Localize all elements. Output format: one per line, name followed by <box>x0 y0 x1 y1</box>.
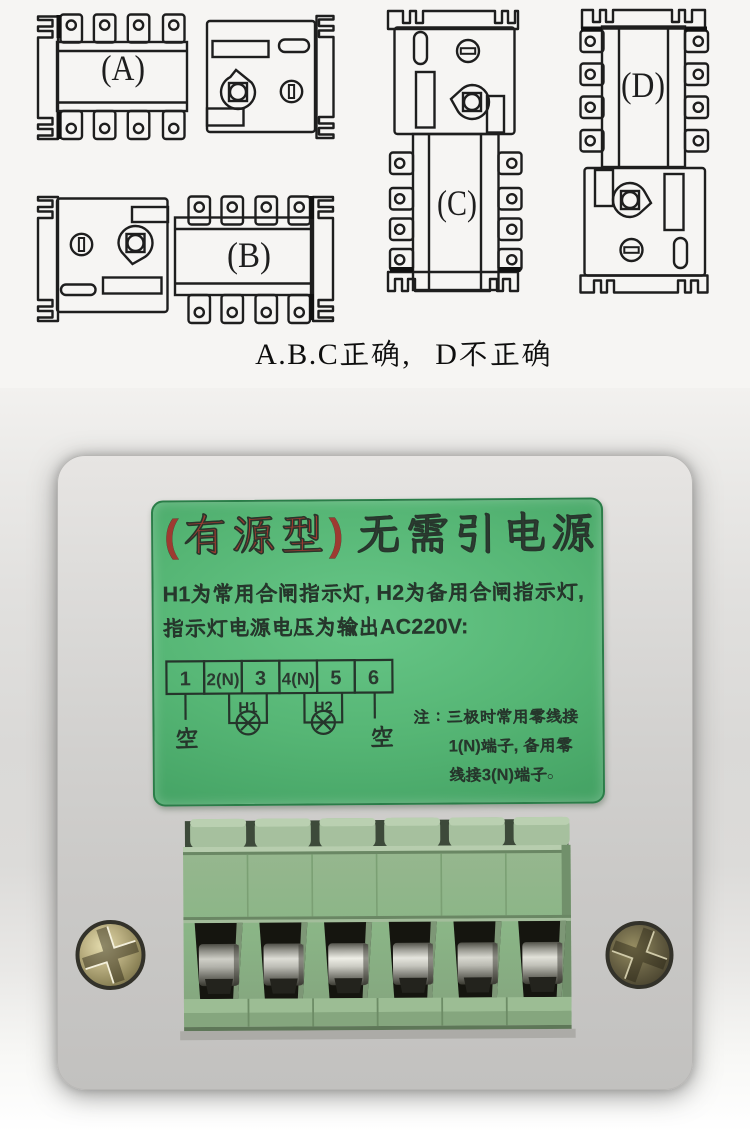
svg-text:(D): (D) <box>621 65 665 105</box>
svg-text:(B): (B) <box>227 235 271 275</box>
svg-text:(C): (C) <box>437 183 477 223</box>
svg-text:(A): (A) <box>101 48 145 88</box>
